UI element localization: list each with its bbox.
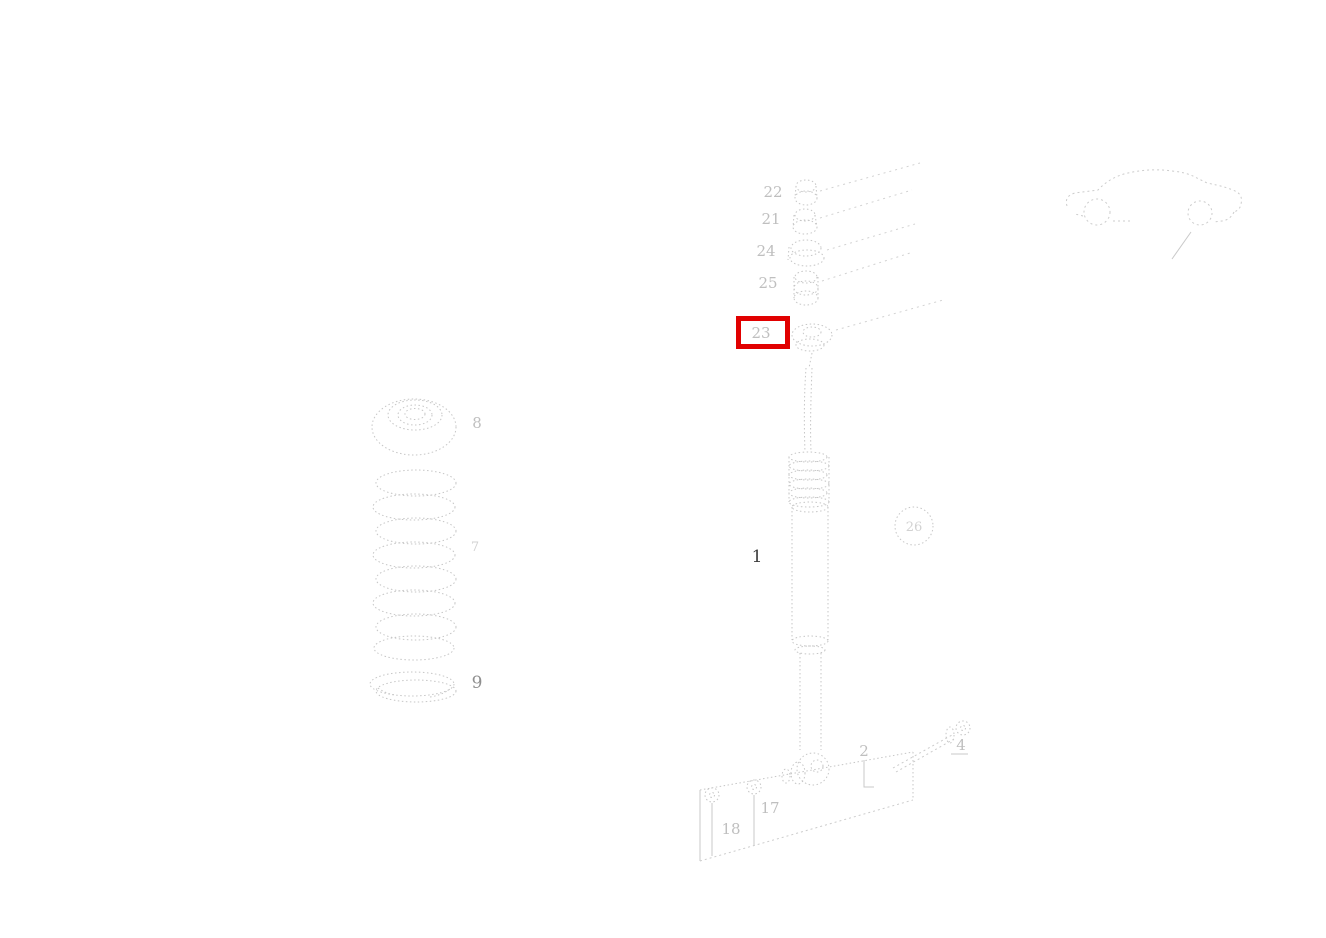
shock-lower-tube — [800, 653, 821, 750]
callout-24[interactable]: 24 — [756, 242, 775, 260]
car-pointer-line — [1172, 232, 1191, 259]
mount-bracket: 18 17 2 4 — [700, 721, 970, 861]
part-sleeve-24 — [788, 224, 915, 266]
car-rear-wheel — [1188, 201, 1212, 225]
callout-23[interactable]: 23 — [751, 324, 770, 342]
car-rear-underside — [1214, 212, 1234, 222]
parts-diagram-canvas: 22 21 24 25 — [0, 0, 1326, 938]
piston-rod-left — [804, 368, 806, 452]
callout-1[interactable]: 1 — [752, 547, 763, 567]
shock-body — [792, 502, 828, 654]
part-washer-21 — [793, 190, 912, 234]
fastener-stack: 22 21 24 25 — [739, 163, 944, 351]
callout-26[interactable]: 26 — [906, 520, 923, 535]
part-washer-23 — [792, 300, 943, 351]
top-rubber-mount — [372, 399, 456, 455]
callout-18[interactable]: 18 — [721, 820, 740, 838]
part-buffer-25 — [794, 253, 910, 305]
leader-2 — [864, 760, 874, 787]
callout-9[interactable]: 9 — [472, 673, 483, 693]
shock-absorber: 1 — [752, 353, 829, 785]
shock-eye — [782, 753, 829, 785]
callout-21[interactable]: 21 — [761, 210, 780, 228]
car-front-underside — [1075, 214, 1083, 216]
coil-spring — [373, 470, 456, 660]
bracket-top-edge — [700, 752, 913, 790]
callout-25[interactable]: 25 — [758, 274, 777, 292]
spring-retainer — [370, 672, 456, 702]
bolt-left — [705, 788, 719, 856]
callout-2[interactable]: 2 — [859, 742, 869, 760]
suspension-parts-diagram: 22 21 24 25 — [0, 0, 1326, 938]
car-front-wheel — [1084, 199, 1110, 225]
piston-rod-right — [811, 368, 812, 452]
callout-4[interactable]: 4 — [956, 736, 966, 754]
boot-bellows — [789, 452, 829, 507]
callout-22[interactable]: 22 — [763, 183, 782, 201]
callout-17[interactable]: 17 — [760, 799, 779, 817]
callout-7[interactable]: 7 — [471, 540, 479, 555]
bolt-right — [747, 780, 761, 846]
circled-callout-26[interactable]: 26 — [895, 507, 933, 545]
spring-assembly: 8 7 9 — [370, 399, 482, 702]
callout-8[interactable]: 8 — [472, 414, 482, 432]
part-nut-22 — [795, 163, 920, 205]
car-body-outline — [1066, 170, 1241, 212]
rod-tip — [809, 353, 812, 368]
car-locator-sketch — [1066, 170, 1241, 259]
